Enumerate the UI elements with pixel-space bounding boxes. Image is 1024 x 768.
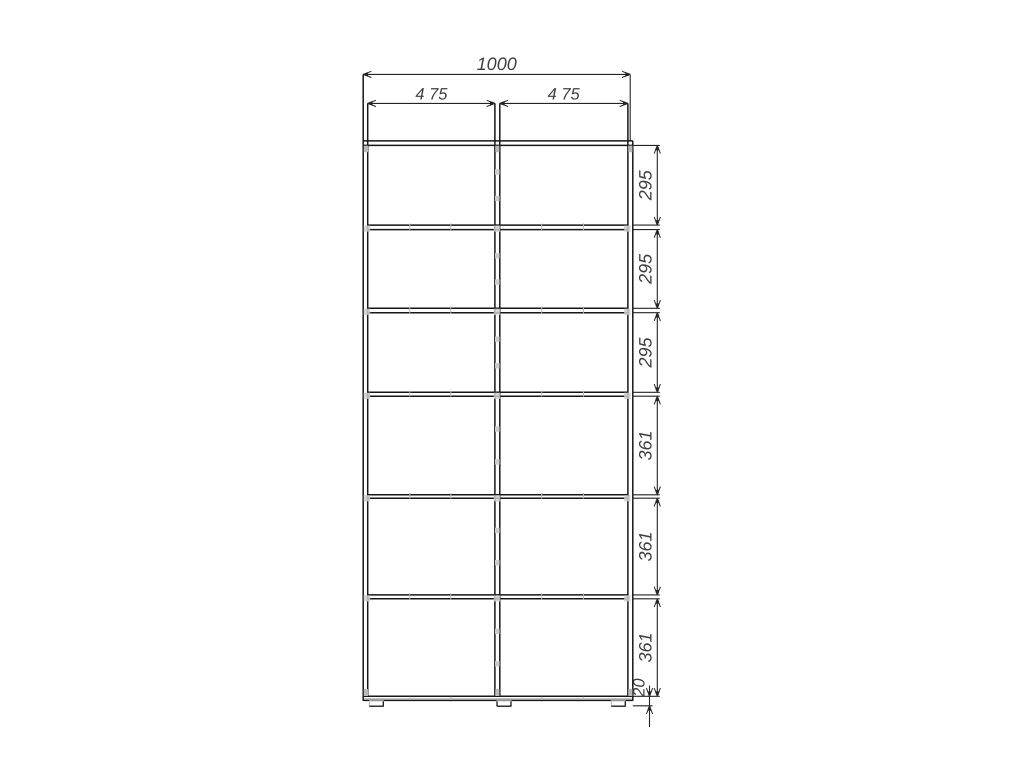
svg-text:361: 361 <box>636 430 656 460</box>
svg-text:361: 361 <box>636 632 656 662</box>
svg-text:295: 295 <box>636 253 656 285</box>
svg-text:4 75: 4 75 <box>548 85 581 103</box>
svg-text:4 75: 4 75 <box>415 85 448 103</box>
svg-text:20: 20 <box>630 678 648 698</box>
svg-text:295: 295 <box>636 169 656 201</box>
svg-text:295: 295 <box>636 337 656 369</box>
svg-text:1000: 1000 <box>477 54 517 74</box>
svg-text:361: 361 <box>636 531 656 561</box>
